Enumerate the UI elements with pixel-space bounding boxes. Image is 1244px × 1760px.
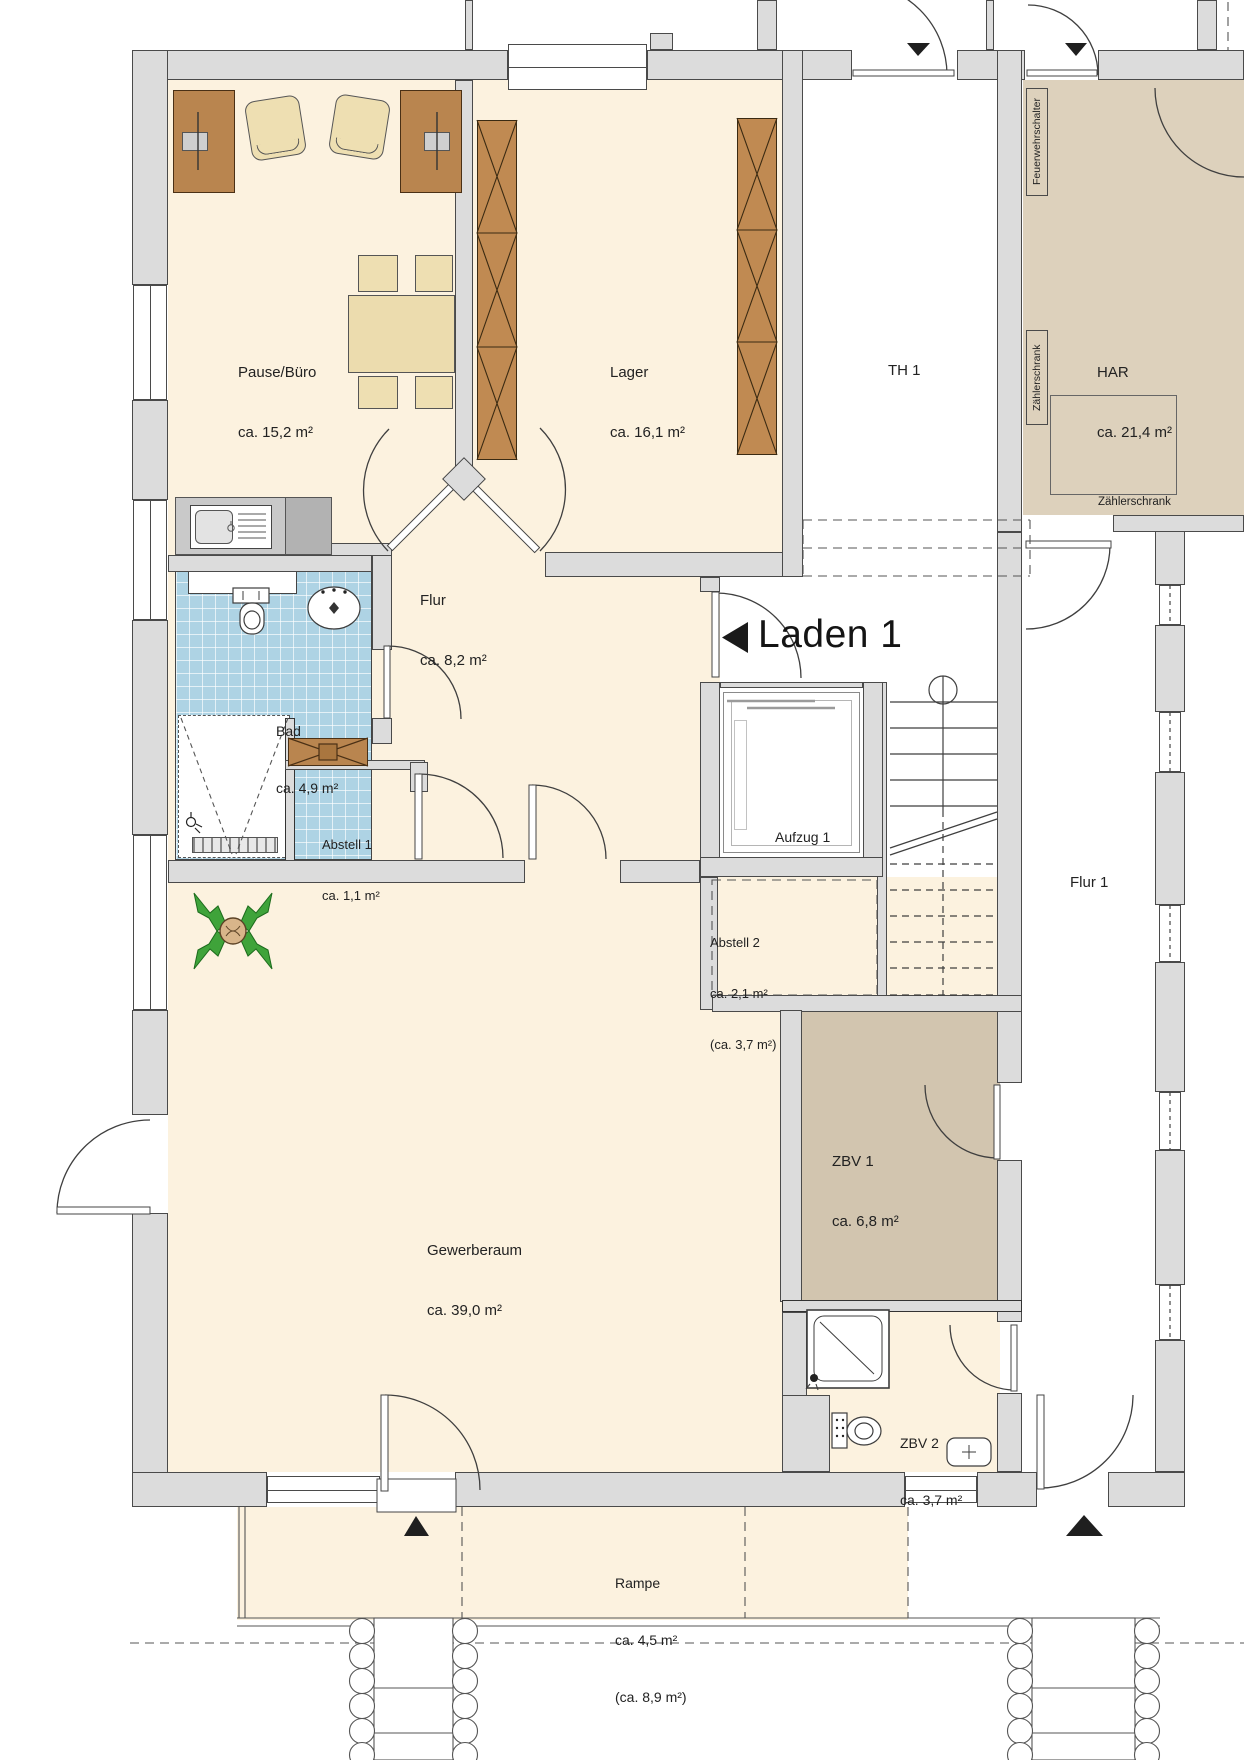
wall-segment	[620, 860, 700, 883]
wall-segment	[372, 718, 392, 744]
room-label-abstell2: Abstell 2 ca. 2,1 m² (ca. 3,7 m²)	[710, 900, 776, 1087]
wall-segment	[168, 555, 372, 572]
wall-segment	[1155, 772, 1185, 905]
window-left	[133, 285, 167, 400]
room-label-gewerberaum: Gewerberaum ca. 39,0 m²	[427, 1201, 522, 1361]
bath-niche	[188, 570, 297, 594]
wall-spur	[1197, 0, 1217, 50]
room-label-rampe: Rampe ca. 4,5 m² (ca. 8,9 m²)	[615, 1536, 687, 1745]
room-label-lager: Lager ca. 16,1 m²	[610, 323, 685, 483]
unit-title-text: Laden 1	[758, 615, 902, 654]
exterior-stairs	[1008, 1618, 1160, 1760]
wall-segment	[132, 1010, 168, 1115]
elevator-shaft-wall	[863, 682, 883, 877]
armchair	[244, 94, 308, 162]
annotation-zaehlerschrank-horizontal: Zählerschrank	[1098, 496, 1171, 508]
room-label-zbv1: ZBV 1 ca. 6,8 m²	[832, 1112, 899, 1272]
room-label-har: HAR ca. 21,4 m²	[1097, 323, 1172, 483]
chair	[415, 255, 453, 292]
wall-segment	[132, 620, 168, 835]
window-top	[508, 44, 647, 90]
room-label-flur: Flur ca. 8,2 m²	[420, 551, 487, 711]
room-label-th1: TH 1	[888, 321, 921, 421]
wall-segment	[132, 400, 168, 500]
wall-segment	[700, 577, 720, 592]
wall-spur	[757, 0, 777, 50]
room-label-flur1: Flur 1	[1070, 833, 1108, 933]
wall-segment	[997, 1393, 1022, 1472]
exterior-stairs	[350, 1618, 478, 1760]
window-right	[1159, 1285, 1181, 1340]
window-right	[1159, 905, 1181, 962]
wall-spur	[465, 0, 473, 50]
annotation-feuerwehrschalter: Feuerwehrschalter	[1026, 88, 1048, 196]
wall-segment	[782, 50, 803, 577]
wall-segment	[1155, 530, 1185, 585]
armchair	[328, 93, 392, 161]
unit-title: Laden 1	[758, 615, 902, 654]
wall-segment	[132, 1472, 267, 1507]
terrace-rampe	[237, 1507, 908, 1620]
wall-segment	[132, 50, 508, 80]
wall-spur	[986, 0, 994, 50]
desk-chair	[182, 132, 208, 151]
window-left	[133, 500, 167, 620]
wall-segment	[1108, 1472, 1185, 1507]
desk-chair	[424, 132, 450, 151]
wall-segment	[1155, 625, 1185, 712]
room-label-aufzug1: Aufzug 1	[775, 790, 830, 885]
wall-segment	[372, 555, 392, 650]
wall-segment	[1155, 1340, 1185, 1472]
wall-segment	[455, 1472, 905, 1507]
wall-segment	[782, 1300, 1022, 1312]
storage-shelf	[737, 118, 777, 455]
wall-segment	[977, 1472, 1037, 1507]
wall-segment	[1155, 962, 1185, 1092]
wall-segment	[782, 1395, 830, 1472]
wall-spur	[650, 33, 673, 50]
room-label-zbv2: ZBV 2 ca. 3,7 m²	[900, 1396, 962, 1548]
chair	[415, 376, 453, 409]
window-right	[1159, 712, 1181, 772]
wall-segment	[1113, 515, 1244, 532]
window-left	[133, 835, 167, 1010]
kitchen-sink-bowl	[195, 510, 233, 544]
room-gewerberaum	[168, 883, 782, 1472]
wall-segment	[1098, 50, 1244, 80]
room-label-pause-buero: Pause/Büro ca. 15,2 m²	[238, 323, 316, 483]
storage-shelf	[477, 120, 517, 460]
floor-plan: Laden 1 Pause/Büro ca. 15,2 m² Lager ca.…	[0, 0, 1244, 1760]
window-bottom	[267, 1476, 380, 1503]
chair	[358, 376, 398, 409]
wall-segment	[780, 1010, 802, 1302]
window-right	[1159, 1092, 1181, 1150]
window-right	[1159, 585, 1181, 625]
wall-segment	[410, 762, 428, 792]
elevator-shaft-wall	[700, 682, 720, 877]
annotation-zaehlerschrank-vertical: Zählerschrank	[1026, 330, 1048, 425]
wall-segment	[647, 50, 852, 80]
wall-segment	[545, 552, 803, 577]
wall-segment	[132, 1213, 168, 1507]
elevator-counterweight	[734, 720, 747, 830]
wall-segment	[132, 50, 168, 285]
dining-table	[348, 295, 455, 373]
chair	[358, 255, 398, 292]
wall-segment	[997, 50, 1022, 532]
wall-segment	[1155, 1150, 1185, 1285]
kitchen-appliance	[285, 497, 332, 555]
radiator-icon	[192, 837, 278, 853]
wall-segment	[997, 1160, 1022, 1322]
room-label-abstell1: Abstell 1 ca. 1,1 m²	[322, 802, 380, 938]
